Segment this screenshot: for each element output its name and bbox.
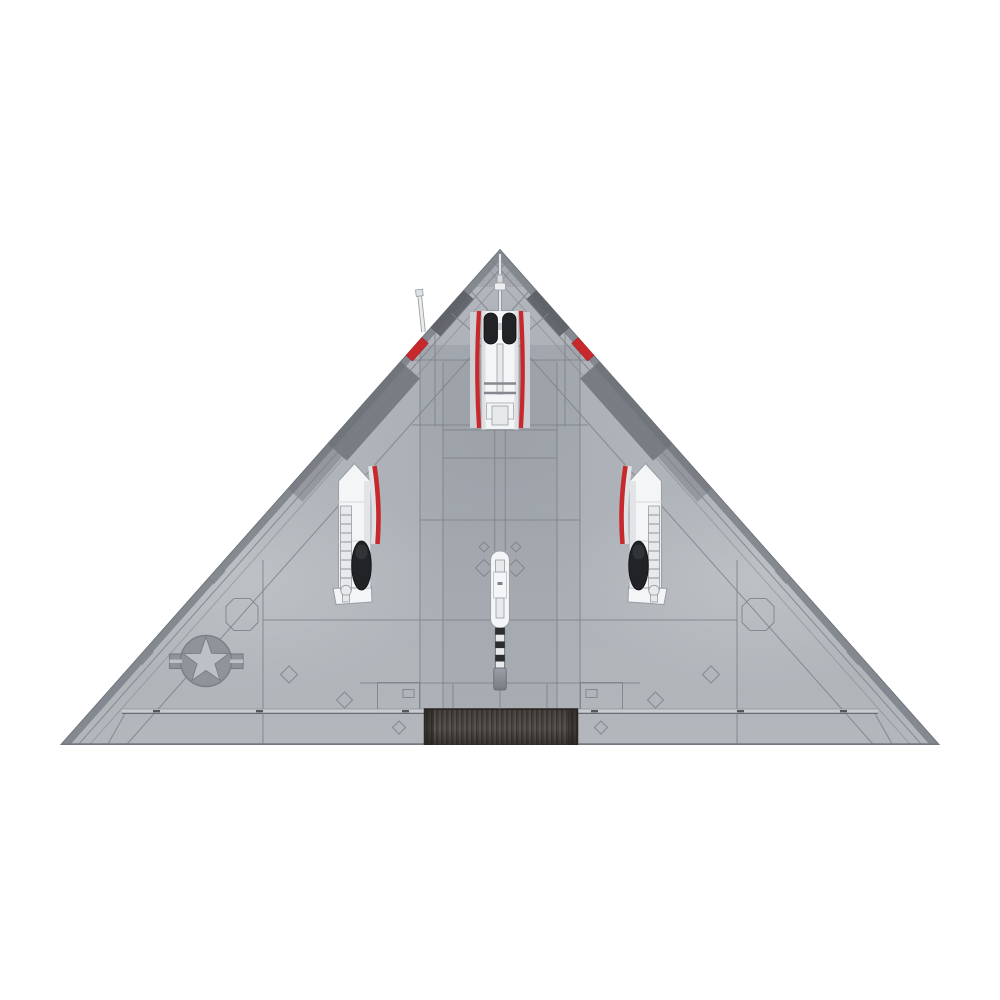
hook-tip (494, 668, 506, 690)
nose-wheel-left (484, 313, 498, 344)
red-nose-door-edge (521, 311, 523, 428)
nose-wheel-right (503, 313, 517, 344)
illustration-canvas: Delta-wing stealth aircraft, ventral (bo… (0, 0, 1000, 1000)
arresting-hook-boom (494, 628, 506, 690)
aircraft-bottom-view (0, 0, 1000, 1000)
red-nose-door-edge (477, 311, 479, 428)
nose-gear-strut (497, 344, 503, 394)
pitot-probe (416, 289, 427, 332)
exhaust-grille (425, 709, 578, 747)
